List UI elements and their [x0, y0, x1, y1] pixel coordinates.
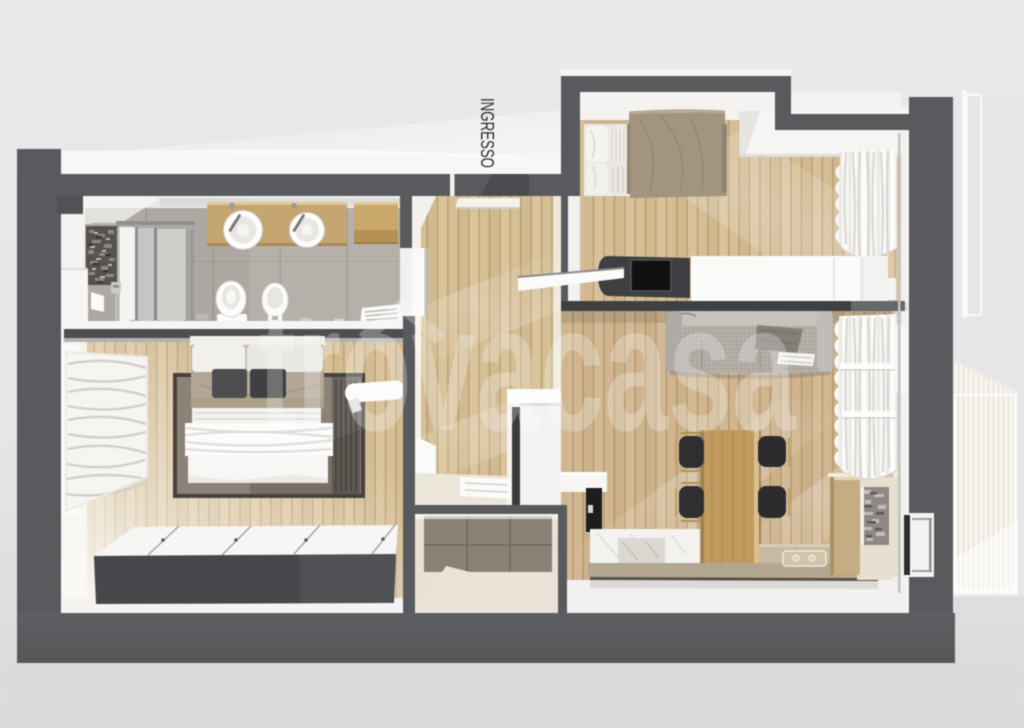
svg-text:trovacasa: trovacasa: [258, 268, 797, 469]
svg-text:INGRESSO: INGRESSO: [477, 98, 497, 168]
